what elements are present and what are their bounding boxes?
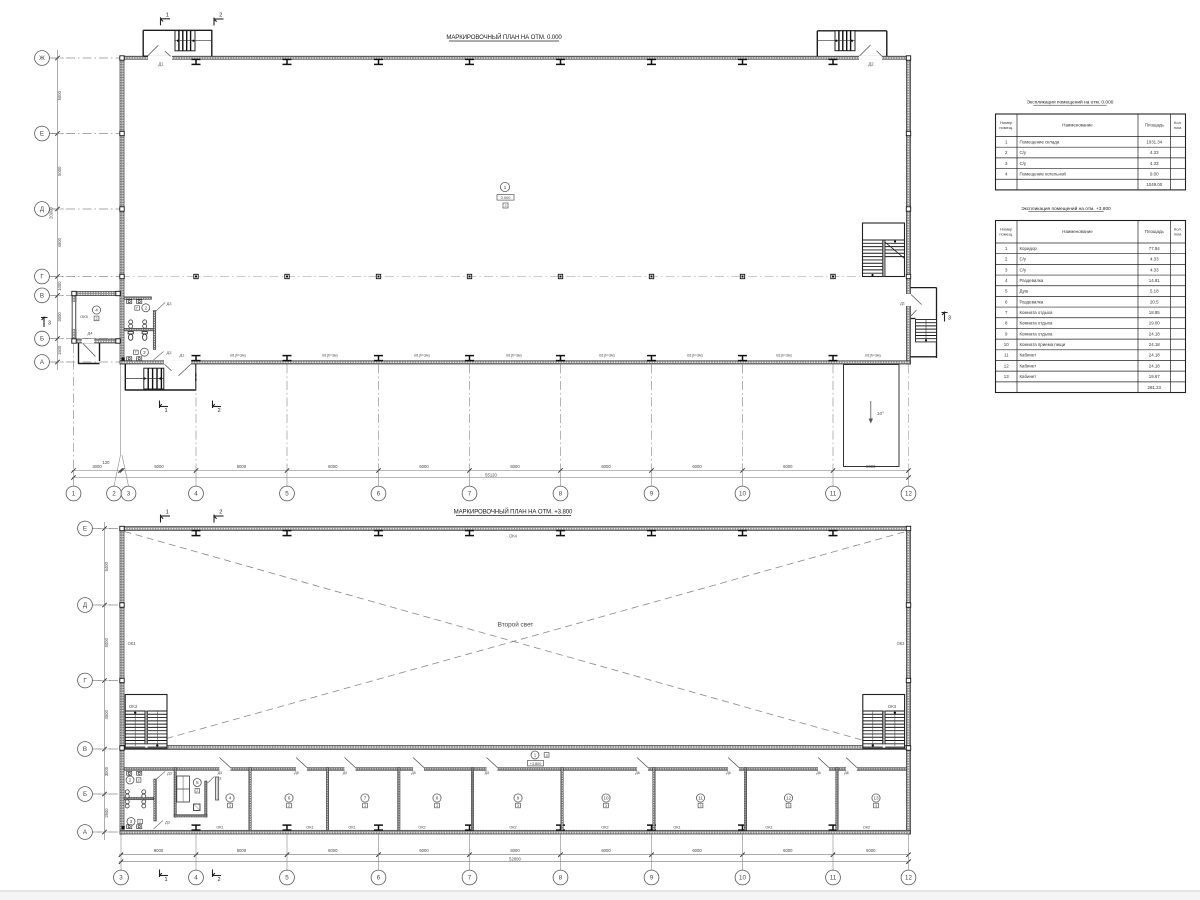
svg-text:Д5: Д5: [218, 771, 222, 775]
svg-text:Д5: Д5: [485, 771, 489, 775]
svg-text:ОК3: ОК3: [897, 641, 906, 646]
svg-text:Помещение склада: Помещение склада: [1020, 139, 1060, 144]
svg-text:3: 3: [605, 804, 607, 808]
svg-text:3000: 3000: [104, 766, 109, 776]
svg-text:В1(h=3м): В1(h=3м): [230, 354, 245, 358]
svg-text:ОК1: ОК1: [673, 826, 680, 830]
svg-text:ОК2: ОК2: [509, 826, 516, 830]
svg-text:11: 11: [698, 796, 703, 801]
svg-text:5: 5: [1005, 289, 1008, 294]
svg-text:Комната приема пищи: Комната приема пищи: [1020, 342, 1066, 347]
svg-text:6000: 6000: [328, 464, 338, 469]
svg-text:ОК2: ОК2: [863, 826, 870, 830]
svg-text:6000: 6000: [237, 848, 247, 853]
svg-text:7: 7: [468, 491, 472, 498]
svg-text:Коридор: Коридор: [1020, 246, 1038, 251]
svg-text:1: 1: [165, 877, 168, 883]
svg-text:Площадь: Площадь: [1145, 229, 1165, 234]
svg-text:ОК1: ОК1: [348, 826, 355, 830]
svg-text:3: 3: [1005, 267, 1008, 272]
svg-text:ОК2: ОК2: [418, 826, 425, 830]
svg-text:5000: 5000: [154, 464, 164, 469]
svg-text:Д3: Д3: [167, 350, 173, 355]
svg-text:9000: 9000: [154, 848, 164, 853]
svg-text:5000: 5000: [57, 90, 62, 100]
svg-text:3000: 3000: [92, 464, 102, 469]
svg-text:пом.: пом.: [1174, 231, 1182, 236]
svg-text:55120: 55120: [485, 472, 497, 477]
svg-text:ОК5: ОК5: [80, 314, 88, 319]
svg-text:6000: 6000: [237, 464, 247, 469]
svg-text:5000: 5000: [57, 166, 62, 176]
svg-text:Д5: Д5: [343, 771, 347, 775]
svg-text:1000: 1000: [57, 281, 62, 291]
svg-text:3: 3: [436, 804, 438, 808]
svg-text:Кабинет: Кабинет: [1020, 363, 1037, 368]
svg-text:МАРКИРОВОЧНЫЙ ПЛАН НА ОТМ. +3.: МАРКИРОВОЧНЫЙ ПЛАН НА ОТМ. +3.800: [454, 508, 573, 516]
svg-text:Г: Г: [135, 351, 137, 355]
svg-text:2: 2: [219, 510, 222, 516]
svg-text:12: 12: [905, 491, 912, 498]
svg-text:5000: 5000: [104, 637, 109, 647]
svg-text:В1(h=3м): В1(h=3м): [414, 354, 429, 358]
svg-text:3: 3: [127, 491, 131, 498]
svg-text:3: 3: [48, 321, 51, 327]
svg-text:18.85: 18.85: [1149, 310, 1161, 315]
svg-text:Кабинет: Кабинет: [1020, 353, 1037, 358]
svg-text:Кабинет: Кабинет: [1020, 374, 1037, 379]
svg-text:11: 11: [1004, 353, 1009, 358]
svg-text:5400: 5400: [104, 561, 109, 571]
svg-text:4: 4: [95, 308, 98, 313]
svg-text:Площадь: Площадь: [1145, 123, 1165, 128]
svg-text:ОК4: ОК4: [509, 534, 518, 539]
svg-text:9: 9: [650, 491, 654, 498]
svg-text:Д4: Д4: [88, 331, 94, 336]
svg-text:Б: Б: [40, 336, 44, 343]
svg-text:6000: 6000: [419, 464, 429, 469]
svg-text:6: 6: [1005, 299, 1008, 304]
svg-text:0.000: 0.000: [501, 195, 512, 200]
svg-text:Е: Е: [83, 526, 87, 533]
svg-text:3: 3: [546, 753, 548, 757]
svg-text:В: В: [83, 746, 87, 753]
svg-text:4: 4: [1005, 171, 1008, 176]
svg-text:ОК3: ОК3: [129, 704, 138, 709]
svg-text:8: 8: [559, 491, 563, 498]
svg-text:Комната отдыха: Комната отдыха: [1020, 310, 1053, 315]
svg-text:2: 2: [95, 317, 97, 321]
svg-text:Д3: Д3: [167, 772, 172, 776]
svg-text:1049.00: 1049.00: [1146, 182, 1162, 187]
svg-text:Д6: Д6: [726, 771, 730, 775]
svg-text:6000: 6000: [419, 848, 429, 853]
svg-text:2: 2: [1005, 257, 1008, 262]
svg-text:1: 1: [165, 408, 168, 414]
svg-text:Е: Е: [40, 131, 44, 138]
svg-text:Помещение котельной: Помещение котельной: [1020, 171, 1067, 176]
svg-text:4.33: 4.33: [1150, 257, 1159, 262]
svg-text:2: 2: [138, 778, 140, 782]
svg-text:ОК1: ОК1: [306, 826, 313, 830]
svg-text:4500: 4500: [104, 709, 109, 719]
svg-text:Д2: Д2: [868, 62, 874, 67]
svg-text:77.84: 77.84: [1149, 246, 1161, 251]
svg-text:9.00: 9.00: [1150, 171, 1159, 176]
svg-text:1031.34: 1031.34: [1146, 139, 1162, 144]
svg-text:6: 6: [288, 796, 291, 801]
svg-text:52000: 52000: [509, 856, 521, 861]
svg-text:ОК3: ОК3: [888, 704, 897, 709]
svg-text:4: 4: [229, 796, 232, 801]
svg-text:2: 2: [288, 804, 290, 808]
svg-text:+3.800: +3.800: [530, 762, 542, 766]
svg-text:Наименование: Наименование: [1062, 229, 1093, 234]
svg-text:3: 3: [517, 804, 519, 808]
svg-text:10°: 10°: [877, 411, 884, 417]
svg-text:Душ: Душ: [1020, 289, 1029, 294]
svg-text:6000: 6000: [601, 848, 611, 853]
svg-text:24.18: 24.18: [1149, 331, 1161, 336]
svg-text:3: 3: [119, 875, 123, 882]
svg-text:19.00: 19.00: [1149, 321, 1161, 326]
svg-text:Д5: Д5: [411, 771, 415, 775]
svg-text:Д1: Д1: [900, 300, 906, 305]
svg-text:В1(h=3м): В1(h=3м): [865, 354, 880, 358]
svg-text:С/у: С/у: [1020, 161, 1027, 166]
svg-text:20000: 20000: [49, 207, 54, 219]
svg-text:В: В: [40, 293, 44, 300]
svg-text:С/у: С/у: [1020, 257, 1027, 262]
svg-text:В1(h=3м): В1(h=3м): [322, 354, 337, 358]
svg-text:С/у: С/у: [1020, 150, 1027, 155]
svg-text:Раздевалка: Раздевалка: [1020, 299, 1044, 304]
svg-text:11: 11: [830, 875, 837, 882]
svg-text:Комната отдыха: Комната отдыха: [1020, 331, 1053, 336]
svg-text:4.33: 4.33: [1150, 150, 1159, 155]
svg-text:помещ.: помещ.: [999, 231, 1013, 236]
svg-text:13: 13: [1004, 374, 1009, 379]
svg-text:24.18: 24.18: [1149, 363, 1161, 368]
svg-text:11: 11: [830, 491, 837, 498]
svg-text:10: 10: [1004, 342, 1009, 347]
svg-text:Раздевалка: Раздевалка: [1020, 278, 1044, 283]
svg-text:Д3: Д3: [167, 301, 173, 306]
svg-text:2: 2: [1005, 150, 1008, 155]
svg-text:1: 1: [72, 491, 76, 498]
svg-text:6: 6: [377, 875, 381, 882]
svg-text:2: 2: [504, 204, 506, 208]
svg-text:Экспликация помещений на отм.: Экспликация помещений на отм. 0.000: [1027, 99, 1114, 106]
svg-text:5000: 5000: [866, 848, 876, 853]
svg-text:6000: 6000: [601, 464, 611, 469]
svg-text:13: 13: [873, 796, 879, 801]
svg-text:ОК2: ОК2: [601, 826, 608, 830]
svg-text:2500: 2500: [104, 808, 109, 818]
svg-text:6000: 6000: [510, 464, 520, 469]
svg-text:5000: 5000: [866, 464, 876, 469]
svg-text:Наименование: Наименование: [1062, 123, 1093, 128]
svg-text:120: 120: [103, 460, 111, 465]
svg-text:ОК3: ОК3: [128, 641, 137, 646]
svg-text:Д6: Д6: [844, 771, 848, 775]
svg-text:1500: 1500: [57, 345, 62, 355]
svg-text:2: 2: [218, 877, 221, 883]
svg-text:С/у: С/у: [1020, 267, 1027, 272]
svg-text:ОК1: ОК1: [216, 826, 223, 830]
svg-text:8: 8: [559, 875, 563, 882]
svg-text:В1(h=3м): В1(h=3м): [599, 354, 614, 358]
svg-text:2: 2: [139, 820, 141, 824]
svg-text:3: 3: [875, 804, 877, 808]
svg-text:1: 1: [1005, 246, 1008, 251]
svg-text:6000: 6000: [783, 848, 793, 853]
svg-text:1: 1: [166, 13, 169, 19]
svg-text:В1(h=3м): В1(h=3м): [687, 354, 702, 358]
svg-text:Экспликация помещений на отм.: Экспликация помещений на отм. +3.800: [1021, 205, 1111, 212]
svg-text:В1(h=3м): В1(h=3м): [776, 354, 791, 358]
svg-text:6000: 6000: [328, 848, 338, 853]
svg-text:3: 3: [229, 804, 231, 808]
svg-text:6000: 6000: [510, 848, 520, 853]
svg-text:3: 3: [1005, 161, 1008, 166]
svg-text:12: 12: [786, 796, 792, 801]
svg-text:281.23: 281.23: [1148, 385, 1162, 390]
svg-text:9: 9: [517, 796, 520, 801]
svg-text:19.67: 19.67: [1149, 374, 1161, 379]
svg-text:3: 3: [364, 804, 366, 808]
svg-text:24.18: 24.18: [1149, 342, 1161, 347]
svg-text:8: 8: [1005, 321, 1008, 326]
svg-text:2: 2: [219, 13, 222, 19]
svg-text:4500: 4500: [57, 237, 62, 247]
svg-text:Г: Г: [136, 306, 138, 310]
svg-text:7: 7: [364, 796, 367, 801]
svg-text:Д5: Д5: [294, 771, 298, 775]
svg-text:10: 10: [739, 491, 746, 498]
svg-text:7: 7: [1005, 310, 1008, 315]
svg-text:9: 9: [650, 875, 654, 882]
svg-text:4: 4: [194, 491, 198, 498]
svg-text:24.18: 24.18: [1149, 353, 1161, 358]
svg-text:6000: 6000: [783, 464, 793, 469]
svg-text:4: 4: [194, 875, 198, 882]
svg-text:Комната отдыха: Комната отдыха: [1020, 321, 1053, 326]
svg-text:4.33: 4.33: [1150, 161, 1159, 166]
svg-text:2: 2: [196, 789, 198, 793]
svg-text:2: 2: [112, 491, 116, 498]
svg-text:4: 4: [1005, 278, 1008, 283]
svg-text:6000: 6000: [692, 848, 702, 853]
svg-text:10: 10: [603, 796, 609, 801]
svg-text:1: 1: [166, 510, 169, 516]
svg-text:Д3: Д3: [165, 821, 170, 825]
svg-text:Д1: Д1: [158, 61, 164, 66]
svg-text:6000: 6000: [692, 464, 702, 469]
svg-text:12: 12: [1004, 363, 1009, 368]
svg-text:3: 3: [699, 804, 701, 808]
svg-text:Б: Б: [83, 791, 87, 798]
svg-text:Д1: Д1: [180, 352, 186, 357]
svg-text:20.5: 20.5: [1150, 299, 1159, 304]
svg-text:Ж: Ж: [39, 55, 45, 62]
svg-text:5: 5: [285, 875, 289, 882]
svg-text:МАРКИРОВОЧНЫЙ ПЛАН НА ОТМ. 0.0: МАРКИРОВОЧНЫЙ ПЛАН НА ОТМ. 0.000: [446, 33, 562, 41]
svg-text:9: 9: [1005, 331, 1008, 336]
svg-text:1: 1: [1005, 139, 1008, 144]
svg-text:14.81: 14.81: [1149, 278, 1161, 283]
svg-text:В1(h=3м): В1(h=3м): [506, 354, 521, 358]
svg-text:Д6: Д6: [816, 771, 820, 775]
svg-text:2: 2: [218, 408, 221, 414]
svg-text:6: 6: [377, 491, 381, 498]
svg-text:12: 12: [905, 875, 912, 882]
svg-text:Д6: Д6: [635, 771, 639, 775]
svg-text:7: 7: [468, 875, 472, 882]
svg-text:ОК1: ОК1: [765, 826, 772, 830]
svg-text:5.18: 5.18: [1150, 289, 1159, 294]
svg-text:пом.: пом.: [1174, 125, 1182, 130]
svg-text:1: 1: [504, 185, 507, 191]
svg-text:Второй свет: Второй свет: [498, 621, 534, 629]
svg-text:10: 10: [739, 875, 746, 882]
svg-text:5: 5: [285, 491, 289, 498]
svg-text:3000: 3000: [57, 312, 62, 322]
svg-text:8: 8: [436, 796, 439, 801]
svg-text:3: 3: [948, 316, 951, 322]
svg-text:4.33: 4.33: [1150, 267, 1159, 272]
svg-text:помещ.: помещ.: [999, 125, 1013, 130]
svg-text:3: 3: [787, 804, 789, 808]
